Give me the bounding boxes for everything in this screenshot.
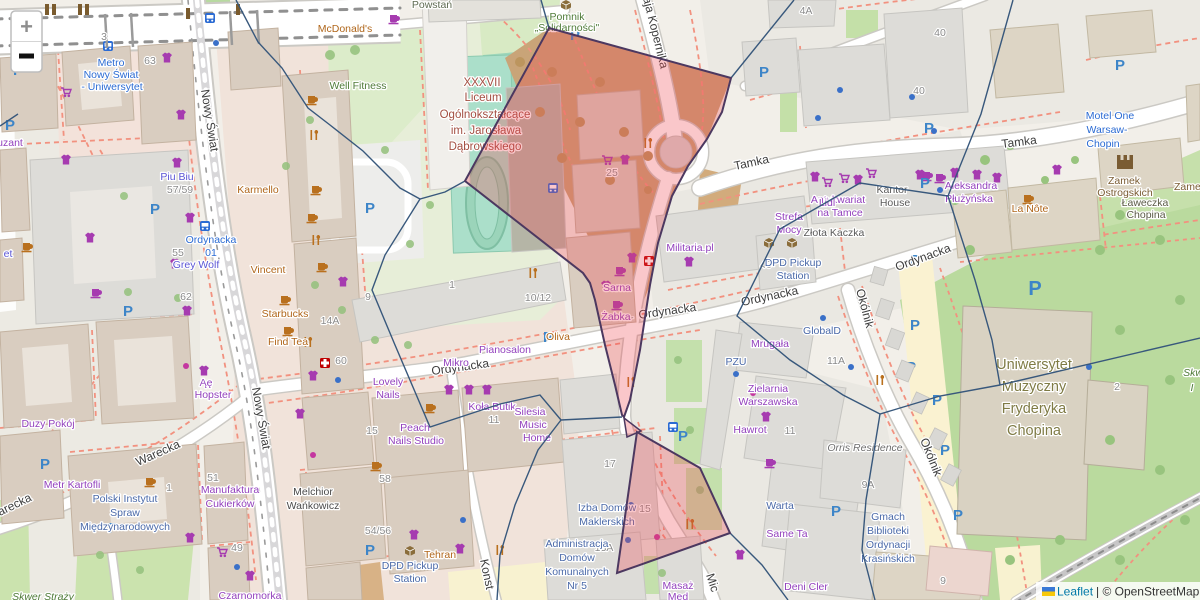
svg-text:P: P (1028, 278, 1041, 300)
svg-text:11: 11 (489, 414, 500, 426)
svg-text:P: P (365, 200, 375, 217)
svg-text:1: 1 (166, 482, 172, 494)
svg-text:P: P (123, 303, 133, 320)
svg-text:10/12: 10/12 (525, 292, 551, 304)
svg-text:Med: Med (668, 591, 689, 600)
svg-text:Find Tea: Find Tea (268, 336, 308, 348)
svg-text:P: P (1115, 57, 1125, 74)
svg-text:Chopina: Chopina (1126, 209, 1165, 221)
svg-text:P: P (150, 201, 160, 218)
svg-text:Strefa: Strefa (775, 211, 803, 223)
svg-text:15: 15 (366, 425, 378, 437)
svg-text:Domów: Domów (559, 552, 595, 564)
svg-text:P: P (910, 317, 920, 334)
svg-text:Zamek: Zamek (1174, 181, 1200, 193)
svg-text:Ąę: Ąę (200, 377, 213, 389)
svg-text:PZU: PZU (726, 356, 747, 368)
svg-text:Well Fitness: Well Fitness (330, 80, 387, 92)
svg-text:Grey Wolf: Grey Wolf (173, 259, 220, 271)
svg-text:- Uniwersytet: - Uniwersytet (81, 81, 142, 93)
svg-text:Leaflet: Leaflet (1057, 585, 1094, 599)
svg-text:Silesia: Silesia (515, 406, 546, 418)
svg-text:La Nôte: La Nôte (1012, 203, 1049, 215)
svg-text:Hopster: Hopster (195, 389, 232, 401)
svg-text:Biblioteki: Biblioteki (867, 525, 909, 537)
svg-text:GlobalD: GlobalD (803, 325, 841, 337)
svg-text:Czarnomorka: Czarnomorka (218, 590, 281, 600)
svg-text:House: House (880, 197, 911, 209)
svg-text:Orris Residence: Orris Residence (827, 442, 902, 454)
svg-text:P: P (40, 456, 50, 473)
svg-text:+: + (20, 14, 33, 39)
svg-text:Cukierków: Cukierków (205, 498, 254, 510)
svg-text:Mocy: Mocy (776, 224, 802, 236)
svg-text:DPD Pickup: DPD Pickup (765, 257, 822, 269)
svg-text:Komunalnych: Komunalnych (545, 566, 609, 578)
svg-text:57/59: 57/59 (167, 184, 193, 196)
svg-text:Station: Station (777, 270, 810, 282)
svg-text:Wańkowicz: Wańkowicz (287, 500, 340, 512)
svg-text:62: 62 (180, 291, 192, 303)
svg-text:58: 58 (379, 473, 391, 485)
svg-text:Chopin: Chopin (1086, 138, 1119, 150)
svg-text:Ordynacji: Ordynacji (866, 539, 910, 551)
svg-text:Krasińskich: Krasińskich (861, 553, 915, 565)
svg-text:Lovely: Lovely (373, 376, 404, 388)
svg-text:11A: 11A (827, 355, 845, 367)
svg-text:Zamek: Zamek (1108, 175, 1141, 187)
svg-text:Warsaw-: Warsaw- (1086, 124, 1128, 136)
svg-text:Skw: Skw (1183, 367, 1200, 379)
svg-text:Chopina: Chopina (1007, 423, 1062, 439)
svg-text:Same Ta: Same Ta (766, 528, 807, 540)
svg-text:60: 60 (335, 355, 347, 367)
svg-text:XXXVII: XXXVII (463, 77, 500, 89)
svg-text:3: 3 (101, 31, 107, 43)
svg-text:9: 9 (365, 291, 371, 303)
svg-text:Powstań: Powstań (412, 0, 452, 11)
svg-text:Oliva: Oliva (546, 331, 570, 343)
svg-text:I: I (1191, 382, 1194, 394)
svg-text:54/56: 54/56 (365, 525, 391, 537)
svg-text:Nr 5: Nr 5 (567, 580, 587, 592)
svg-text:Karmello: Karmello (237, 184, 279, 196)
svg-text:55: 55 (172, 247, 184, 259)
svg-text:Deni Cler: Deni Cler (784, 581, 828, 593)
svg-text:Vincent: Vincent (251, 264, 286, 276)
svg-text:Piu Biu: Piu Biu (160, 171, 193, 183)
svg-text:Liceum: Liceum (464, 92, 501, 104)
svg-text:Motel One: Motel One (1086, 110, 1135, 122)
svg-text:P: P (365, 542, 375, 559)
svg-text:63: 63 (144, 55, 156, 67)
svg-text:Militaria.pl: Militaria.pl (666, 242, 713, 254)
svg-text:51: 51 (207, 472, 219, 484)
svg-text:P: P (759, 64, 769, 81)
svg-text:1: 1 (449, 279, 455, 291)
svg-text:P: P (831, 503, 841, 520)
svg-text:DPD Pickup: DPD Pickup (382, 560, 439, 572)
svg-text:Nails: Nails (376, 389, 399, 401)
svg-text:01: 01 (205, 247, 217, 259)
svg-text:49: 49 (231, 542, 243, 554)
svg-text:uzant: uzant (0, 137, 23, 149)
svg-text:Starbucks: Starbucks (262, 308, 309, 320)
svg-text:Pianosalon: Pianosalon (479, 344, 531, 356)
svg-text:4A: 4A (800, 5, 813, 17)
svg-text:Gmach: Gmach (871, 511, 905, 523)
svg-text:Muzyczny: Muzyczny (1002, 379, 1067, 395)
svg-text:Melchior: Melchior (293, 486, 333, 498)
svg-text:Międzynarodowych: Międzynarodowych (80, 521, 170, 533)
svg-text:40: 40 (913, 85, 925, 97)
svg-text:Metro: Metro (98, 57, 125, 69)
svg-text:Warta: Warta (766, 500, 794, 512)
svg-text:Ławeczka: Ławeczka (1122, 197, 1169, 209)
svg-text:Zielarnia: Zielarnia (748, 383, 788, 395)
svg-text:| © OpenStreetMap: | © OpenStreetMap (1096, 585, 1200, 599)
svg-text:2: 2 (1114, 381, 1120, 393)
svg-text:Hawrot: Hawrot (733, 424, 766, 436)
svg-text:Ordynacka: Ordynacka (186, 234, 237, 246)
svg-text:9: 9 (940, 575, 946, 587)
svg-text:Spraw: Spraw (110, 507, 140, 519)
svg-text:Warszawska: Warszawska (738, 396, 797, 408)
svg-text:40: 40 (934, 27, 946, 39)
svg-text:Music: Music (519, 419, 546, 431)
svg-text:P: P (932, 392, 942, 409)
svg-text:McDonald's: McDonald's (318, 23, 373, 35)
svg-text:Fryderyka: Fryderyka (1002, 401, 1067, 417)
svg-text:Metr Kartofli: Metr Kartofli (44, 479, 101, 491)
svg-text:Złota Kaczka: Złota Kaczka (804, 227, 865, 239)
svg-text:et: et (4, 248, 13, 260)
svg-text:Polski Instytut: Polski Instytut (93, 493, 158, 505)
svg-text:Nowy Świat: Nowy Świat (84, 68, 139, 81)
svg-text:17: 17 (604, 458, 616, 470)
svg-text:Płużyńska: Płużyńska (945, 193, 993, 205)
svg-text:P: P (953, 507, 963, 524)
svg-text:11: 11 (785, 425, 796, 437)
svg-text:Nails Studio: Nails Studio (388, 435, 444, 447)
svg-text:Skwer Straży: Skwer Straży (12, 591, 75, 600)
svg-text:Peach: Peach (400, 422, 430, 434)
svg-text:P: P (920, 175, 930, 192)
svg-text:Tehran: Tehran (424, 549, 456, 561)
svg-text:Station: Station (394, 573, 427, 585)
svg-text:Duzy Pokój: Duzy Pokój (21, 418, 74, 430)
svg-text:14A: 14A (321, 315, 340, 327)
svg-text:Administracja: Administracja (545, 538, 608, 550)
svg-text:Mikro: Mikro (443, 357, 469, 369)
svg-text:Manufaktura: Manufaktura (201, 484, 260, 496)
